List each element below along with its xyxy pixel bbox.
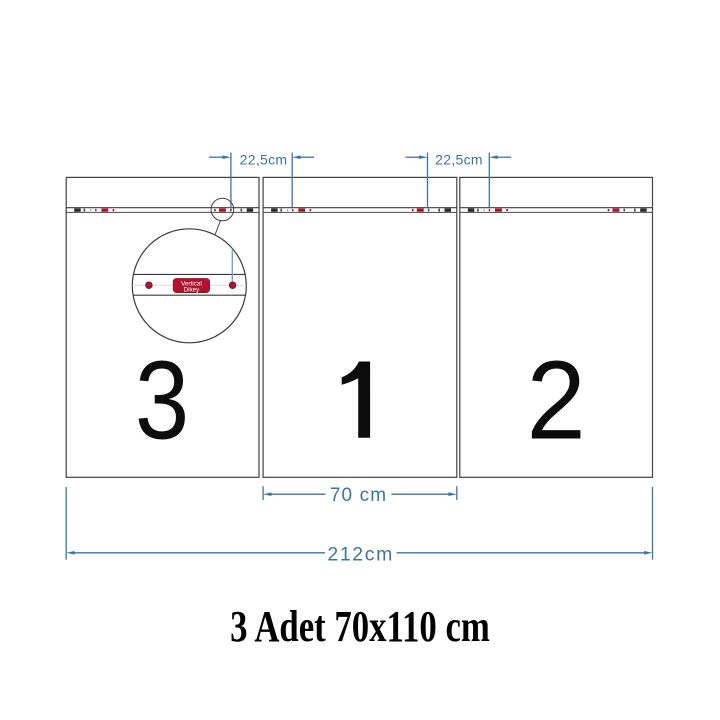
svg-text:22,5cm: 22,5cm xyxy=(240,151,288,167)
svg-text:Dikey: Dikey xyxy=(184,287,201,294)
svg-text:3: 3 xyxy=(135,339,189,463)
svg-text:212cm: 212cm xyxy=(327,543,394,565)
svg-text:2: 2 xyxy=(527,340,586,463)
svg-text:22,5cm: 22,5cm xyxy=(435,151,483,167)
svg-text:70 cm: 70 cm xyxy=(330,485,387,506)
svg-text:3 Adet 70x110 cm: 3 Adet 70x110 cm xyxy=(230,602,490,651)
